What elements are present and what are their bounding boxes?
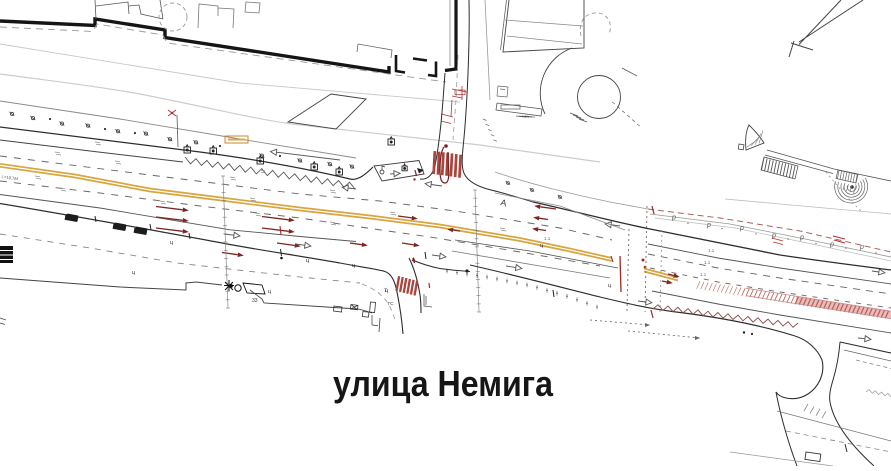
svg-text:p: p [799, 235, 804, 242]
svg-text:ГС: ГС [388, 301, 394, 306]
svg-text:7: 7 [384, 288, 387, 294]
svg-text:p: p [671, 215, 676, 222]
svg-text:1.1: 1.1 [700, 272, 707, 277]
svg-text:улица Немига: улица Немига [333, 363, 554, 404]
svg-text:p: p [859, 244, 864, 251]
svg-text:p: p [739, 225, 744, 232]
svg-text:33: 33 [252, 298, 258, 304]
svg-text:p: p [829, 242, 834, 249]
svg-text:1.1: 1.1 [544, 236, 551, 241]
svg-text:1.1: 1.1 [708, 248, 715, 253]
svg-text:p: p [706, 222, 711, 229]
svg-text:1.1: 1.1 [704, 260, 711, 265]
